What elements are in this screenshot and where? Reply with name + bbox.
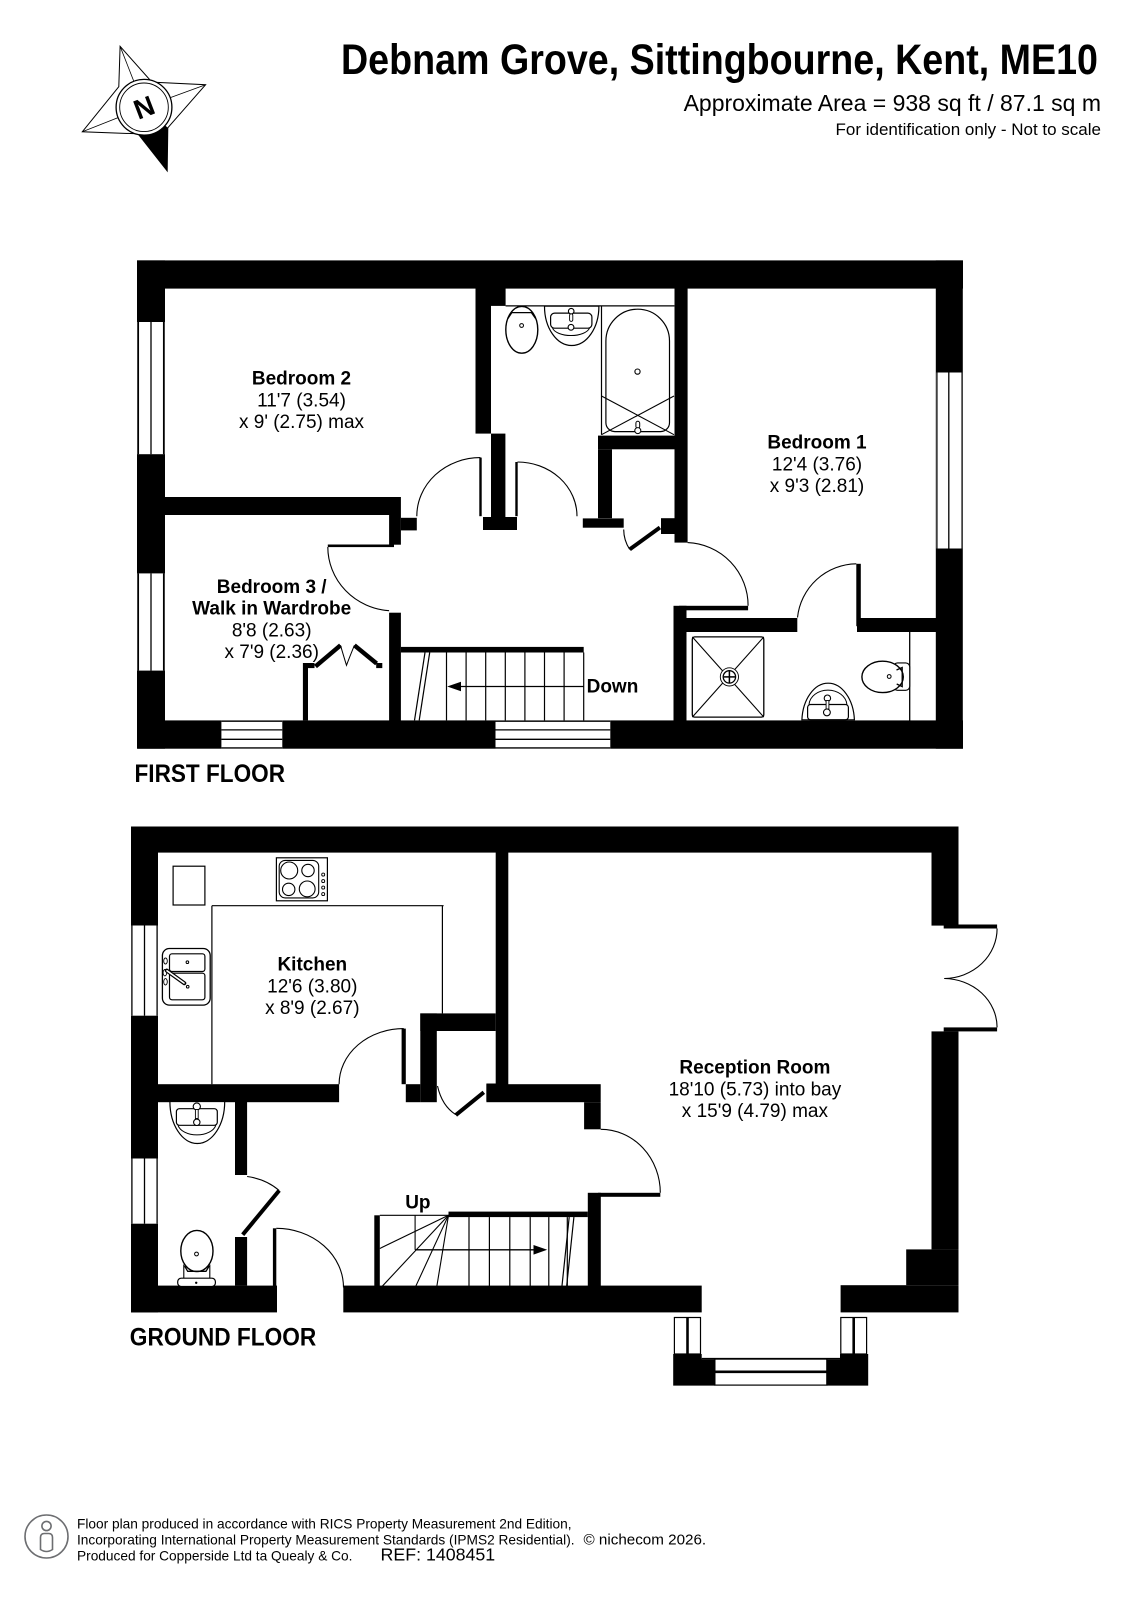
svg-text:x 8'9 (2.67): x 8'9 (2.67) — [265, 998, 359, 1019]
svg-text:Floor plan produced in accorda: Floor plan produced in accordance with R… — [77, 1517, 572, 1532]
svg-text:Walk in Wardrobe: Walk in Wardrobe — [192, 599, 351, 620]
svg-text:Bedroom 2: Bedroom 2 — [252, 369, 351, 390]
svg-text:x 7'9 (2.36): x 7'9 (2.36) — [224, 642, 318, 663]
svg-text:Incorporating International Pr: Incorporating International Property Mea… — [77, 1533, 575, 1548]
svg-text:Up: Up — [405, 1193, 430, 1214]
svg-text:x 9' (2.75) max: x 9' (2.75) max — [239, 412, 365, 433]
svg-text:FIRST FLOOR: FIRST FLOOR — [135, 760, 286, 788]
svg-text:x 15'9 (4.79) max: x 15'9 (4.79) max — [682, 1101, 829, 1122]
svg-text:Approximate Area = 938 sq ft /: Approximate Area = 938 sq ft / 87.1 sq m — [684, 90, 1101, 116]
svg-text:© nichecom 2026.: © nichecom 2026. — [584, 1532, 707, 1549]
svg-text:REF: 1408451: REF: 1408451 — [381, 1545, 496, 1565]
svg-text:11'7 (3.54): 11'7 (3.54) — [257, 390, 346, 411]
svg-text:12'4 (3.76): 12'4 (3.76) — [772, 454, 862, 475]
svg-text:Down: Down — [587, 676, 639, 697]
svg-text:Bedroom 1: Bedroom 1 — [767, 433, 867, 454]
svg-text:x 9'3 (2.81): x 9'3 (2.81) — [770, 476, 864, 497]
svg-text:Bedroom 3 /: Bedroom 3 / — [217, 577, 328, 598]
svg-text:For identification only - Not: For identification only - Not to scale — [835, 120, 1101, 139]
svg-text:18'10 (5.73) into bay: 18'10 (5.73) into bay — [669, 1079, 842, 1100]
svg-text:Produced for Copperside Ltd ta: Produced for Copperside Ltd ta Quealy & … — [77, 1549, 352, 1564]
svg-text:Debnam Grove, Sittingbourne, K: Debnam Grove, Sittingbourne, Kent, ME10 — [341, 36, 1098, 84]
svg-text:8'8 (2.63): 8'8 (2.63) — [232, 620, 312, 641]
svg-text:12'6 (3.80): 12'6 (3.80) — [267, 976, 357, 997]
svg-text:Kitchen: Kitchen — [277, 955, 347, 976]
svg-text:GROUND FLOOR: GROUND FLOOR — [130, 1324, 316, 1352]
svg-text:Reception Room: Reception Room — [679, 1058, 830, 1079]
